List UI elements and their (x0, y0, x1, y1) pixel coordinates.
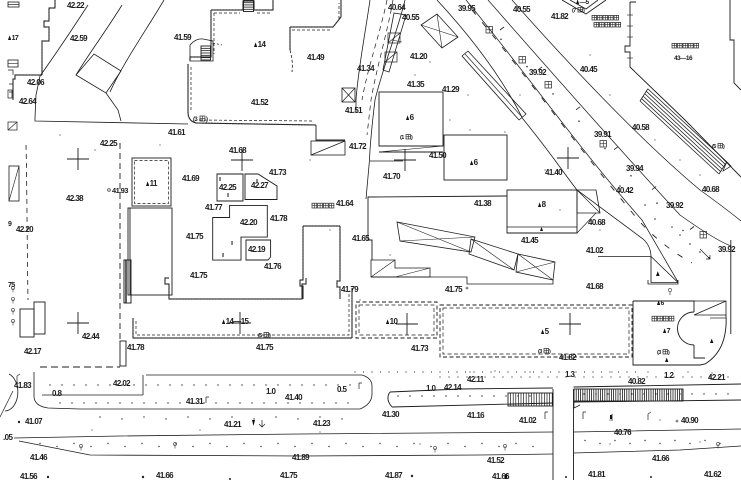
svg-text:39.92: 39.92 (666, 201, 684, 210)
svg-text:40.90: 40.90 (681, 416, 699, 425)
svg-text:41.23: 41.23 (313, 419, 331, 428)
svg-text:41.02: 41.02 (519, 416, 537, 425)
svg-text:75: 75 (8, 282, 15, 289)
svg-text:41.16: 41.16 (467, 411, 485, 420)
svg-text:40.82: 40.82 (628, 377, 646, 386)
svg-text:14—15: 14—15 (226, 317, 250, 326)
svg-text:41.62: 41.62 (704, 470, 722, 479)
svg-text:—5: —5 (580, 0, 590, 6)
svg-text:42.44: 42.44 (82, 332, 100, 341)
svg-text:41.79: 41.79 (341, 285, 359, 294)
svg-text:17: 17 (12, 35, 19, 42)
svg-text:42.14: 42.14 (444, 383, 462, 392)
svg-text:41.87: 41.87 (385, 471, 403, 480)
svg-text:41.52: 41.52 (487, 456, 505, 465)
svg-text:41.78: 41.78 (127, 343, 145, 352)
svg-text:42.17: 42.17 (24, 347, 42, 356)
svg-text:41.70: 41.70 (383, 172, 401, 181)
svg-text:41.75: 41.75 (280, 471, 298, 480)
svg-text:41.35: 41.35 (407, 80, 425, 89)
svg-text:1.0: 1.0 (266, 387, 276, 396)
svg-text:41.40: 41.40 (545, 168, 563, 177)
svg-text:41.02: 41.02 (586, 246, 604, 255)
svg-text:42.06: 42.06 (27, 78, 45, 87)
svg-text:39.91: 39.91 (594, 130, 612, 139)
svg-text:42.27: 42.27 (251, 181, 269, 190)
svg-text:1.2: 1.2 (664, 371, 674, 380)
svg-text:0.5: 0.5 (337, 385, 347, 394)
svg-text:41.82: 41.82 (559, 353, 577, 362)
svg-text:(1: (1 (400, 135, 404, 141)
svg-text:40.68: 40.68 (588, 218, 606, 227)
svg-text:42.59: 42.59 (70, 34, 88, 43)
svg-text:41.75: 41.75 (186, 232, 204, 241)
svg-text:.05: .05 (3, 433, 13, 442)
svg-text:41.81: 41.81 (588, 470, 606, 479)
svg-text:40.45: 40.45 (580, 65, 598, 74)
svg-text:41.93: 41.93 (112, 186, 128, 195)
svg-text:42.11: 42.11 (467, 375, 485, 384)
svg-text:41.66: 41.66 (652, 454, 670, 463)
svg-text:41.66: 41.66 (156, 471, 174, 480)
svg-text:42.20: 42.20 (16, 225, 34, 234)
svg-text:41.68: 41.68 (586, 282, 604, 291)
svg-text:41.72: 41.72 (349, 142, 367, 151)
svg-text:40.55: 40.55 (513, 5, 531, 14)
svg-text:41.56: 41.56 (20, 472, 38, 480)
svg-text:41.89: 41.89 (292, 453, 310, 462)
svg-text:42.21: 42.21 (708, 373, 726, 382)
svg-text:1.3: 1.3 (565, 370, 575, 379)
svg-text:41.65: 41.65 (352, 234, 370, 243)
svg-text:41.75: 41.75 (445, 285, 463, 294)
svg-text:41.64: 41.64 (336, 199, 354, 208)
svg-text:42.02: 42.02 (113, 379, 131, 388)
svg-text:42.25: 42.25 (100, 139, 118, 148)
svg-text:41.51: 41.51 (345, 106, 363, 115)
svg-text:0.8: 0.8 (52, 389, 62, 398)
svg-text:41.52: 41.52 (251, 98, 269, 107)
svg-text:41.40: 41.40 (285, 393, 303, 402)
svg-text:10: 10 (390, 317, 399, 326)
svg-text:40.64: 40.64 (388, 3, 406, 12)
svg-text:41.30: 41.30 (382, 410, 400, 419)
svg-text:41.66: 41.66 (492, 472, 510, 480)
svg-text:(7: (7 (572, 8, 576, 14)
svg-text:41.49: 41.49 (307, 53, 325, 62)
svg-text:41.77: 41.77 (205, 203, 223, 212)
svg-text:41.73: 41.73 (411, 344, 429, 353)
svg-text:42.38: 42.38 (66, 194, 84, 203)
svg-text:42.25: 42.25 (219, 183, 237, 192)
svg-text:42.64: 42.64 (19, 97, 37, 106)
svg-text:41.59: 41.59 (174, 33, 192, 42)
svg-text:14: 14 (258, 40, 267, 49)
svg-text:41.21: 41.21 (224, 420, 242, 429)
svg-text:40.68: 40.68 (702, 185, 720, 194)
svg-text:41.61: 41.61 (168, 128, 186, 137)
svg-text:41.29: 41.29 (442, 85, 460, 94)
svg-text:41.69: 41.69 (182, 174, 200, 183)
svg-text:42.20: 42.20 (240, 218, 258, 227)
svg-text:42.22: 42.22 (67, 1, 85, 10)
svg-text:41.34: 41.34 (357, 64, 375, 73)
svg-text:40.58: 40.58 (632, 123, 650, 132)
svg-text:43—16: 43—16 (674, 55, 693, 62)
svg-text:40.42: 40.42 (616, 186, 634, 195)
svg-text:40.76: 40.76 (614, 428, 632, 437)
svg-text:41.68: 41.68 (229, 146, 247, 155)
svg-text:39.94: 39.94 (626, 164, 644, 173)
svg-text:41.07: 41.07 (25, 417, 43, 426)
svg-text:41.38: 41.38 (474, 199, 492, 208)
svg-text:42.19: 42.19 (248, 245, 266, 254)
svg-text:41.76: 41.76 (264, 262, 282, 271)
svg-text:39.92: 39.92 (718, 245, 736, 254)
svg-text:41.20: 41.20 (410, 52, 428, 61)
svg-text:41.75: 41.75 (256, 343, 274, 352)
svg-text:1.0: 1.0 (426, 384, 436, 393)
svg-text:41.31: 41.31 (186, 397, 204, 406)
svg-text:(5: (5 (258, 333, 262, 339)
svg-text:39.92: 39.92 (529, 68, 547, 77)
svg-text:11: 11 (150, 179, 158, 188)
svg-text:41.46: 41.46 (30, 453, 48, 462)
svg-text:(3: (3 (657, 350, 661, 356)
svg-text:(3: (3 (538, 349, 542, 355)
svg-text:41.45: 41.45 (521, 236, 539, 245)
svg-text:41.78: 41.78 (270, 214, 288, 223)
svg-text:41.82: 41.82 (551, 12, 569, 21)
svg-text:41.73: 41.73 (269, 168, 287, 177)
svg-text:41.75: 41.75 (190, 271, 208, 280)
